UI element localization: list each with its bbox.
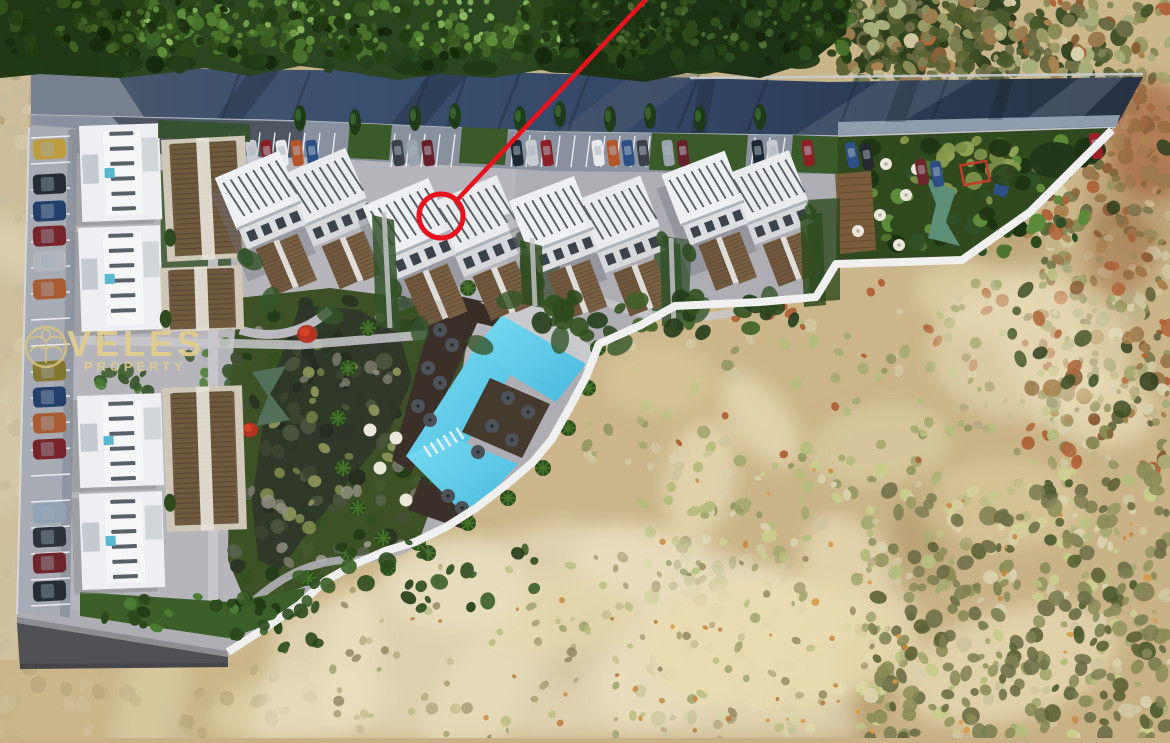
- svg-text:VELES: VELES: [67, 323, 205, 364]
- svg-text:PROPERTY: PROPERTY: [84, 359, 187, 374]
